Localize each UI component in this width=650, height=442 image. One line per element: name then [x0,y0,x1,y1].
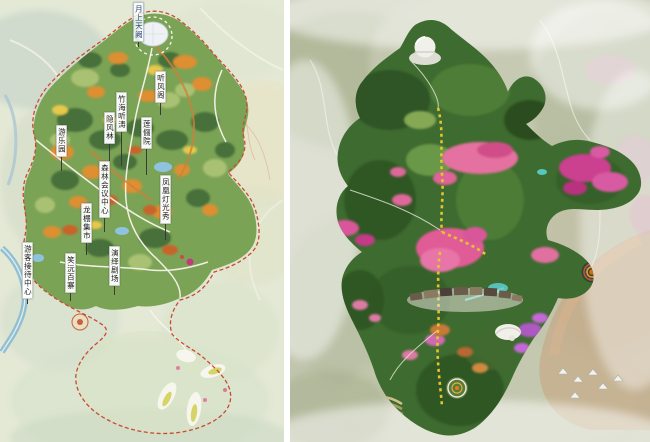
mandala-plaza-icon [446,377,468,399]
label-leader-line [61,157,62,171]
map-label-text: 竹海听涛 [116,92,127,132]
map-label-visitor-center: 游客接待中心 [22,242,33,304]
label-leader-line [109,144,110,162]
aerial-painting [290,0,650,442]
right-panel-aerial [290,0,650,442]
map-label-text: 龙棚集市 [81,203,92,243]
ring-plaza [72,314,88,330]
label-leader-line [146,149,147,175]
map-label-wind-pavilion: 听风阁 [155,71,166,115]
label-leader-line [165,224,166,240]
left-panel-masterplan: 月上天阙 听风阁 竹海听涛 隐风林 莲俪院 游乐园 凤凰灯光秀 森林会议中心 [0,0,284,442]
masterplan-painting [0,0,284,442]
lake [154,162,172,172]
label-leader-line [104,218,105,232]
label-leader-line [70,293,71,301]
map-label-lotus-courtyard: 莲俪院 [141,117,152,175]
map-label-text: 莲俪院 [141,117,152,149]
label-leader-line [86,243,87,255]
map-label-performance-theater: 演绎剧场 [109,246,120,295]
map-label-moon-sky-gate: 月上天阙 [133,2,144,47]
map-label-text: 森林会议中心 [99,161,110,218]
red-node [180,255,184,259]
label-leader-line [27,299,28,304]
map-label-text: 凤凰灯光秀 [160,175,171,224]
label-leader-line [138,42,139,47]
map-label-phoenix-light-show: 凤凰灯光秀 [160,175,171,240]
map-label-forest-conf-center: 森林会议中心 [99,161,110,232]
map-label-hidden-wind-forest: 隐风林 [104,112,115,162]
map-label-bamboo-sea-waves: 竹海听涛 [116,92,127,166]
map-label-text: 演绎剧场 [109,246,120,286]
magenta-node [187,259,194,266]
map-label-text: 听风阁 [155,71,166,103]
map-label-text: 隐风林 [104,112,115,144]
map-label-text: 游客接待中心 [22,242,33,299]
map-label-longpeng-market: 龙棚集市 [81,203,92,255]
map-label-text: 月上天阙 [133,2,144,42]
label-leader-line [121,132,122,166]
label-leader-line [114,286,115,295]
map-label-text: 游乐园 [56,125,67,157]
map-label-hundred-stockades: 笑沅百寨 [65,253,76,301]
map-label-amusement-park: 游乐园 [56,125,67,171]
label-leader-line [160,103,161,115]
map-label-text: 笑沅百寨 [65,253,76,293]
screenshot-root: 月上天阙 听风阁 竹海听涛 隐风林 莲俪院 游乐园 凤凰灯光秀 森林会议中心 [0,0,650,442]
